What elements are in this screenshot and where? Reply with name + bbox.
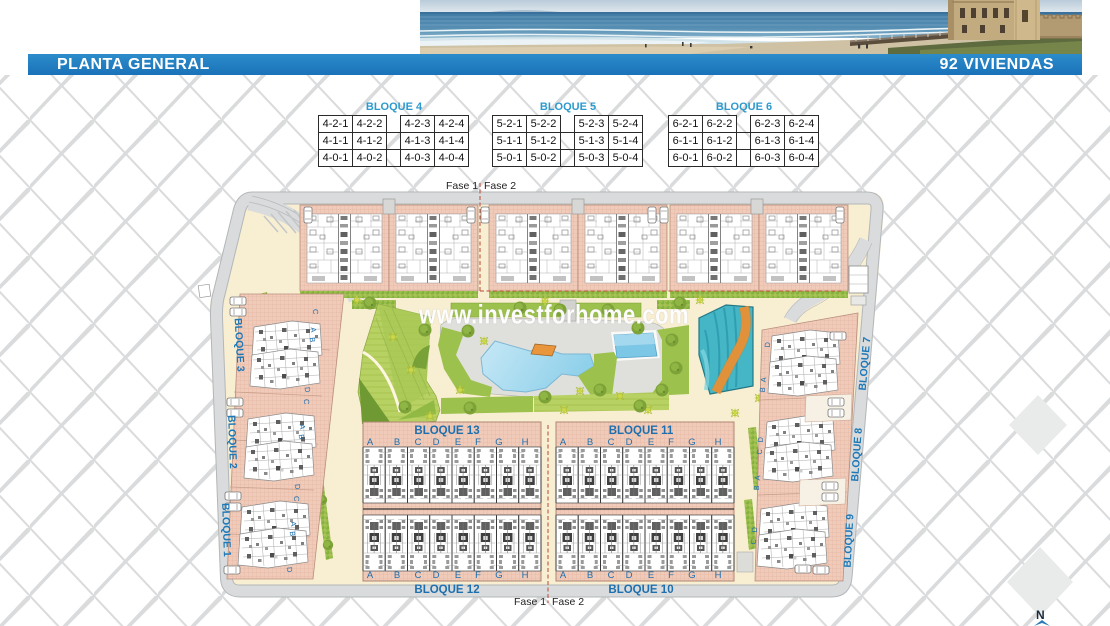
svg-text:BLOQUE 13: BLOQUE 13 (414, 425, 479, 437)
svg-text:BLOQUE 10: BLOQUE 10 (608, 584, 673, 596)
svg-text:D: D (626, 437, 633, 448)
svg-text:A: A (309, 327, 318, 333)
svg-text:A: A (560, 437, 567, 448)
svg-text:F: F (668, 437, 674, 448)
svg-text:G: G (495, 570, 502, 581)
svg-text:C: C (608, 570, 615, 581)
svg-text:D: D (433, 570, 440, 581)
svg-text:B: B (758, 387, 767, 393)
svg-text:C: C (415, 437, 422, 448)
svg-text:B: B (394, 570, 400, 581)
svg-text:G: G (495, 437, 502, 448)
svg-text:B: B (587, 437, 593, 448)
svg-text:D: D (433, 437, 440, 448)
svg-text:H: H (715, 437, 722, 448)
svg-text:E: E (648, 437, 654, 448)
svg-text:G: G (688, 570, 695, 581)
svg-text:B: B (587, 570, 593, 581)
svg-text:BLOQUE 8: BLOQUE 8 (849, 427, 865, 482)
svg-text:C: C (608, 437, 615, 448)
svg-text:C: C (415, 570, 422, 581)
svg-text:BLOQUE 2: BLOQUE 2 (225, 415, 239, 469)
svg-text:A: A (289, 521, 298, 527)
svg-text:B: B (288, 531, 297, 537)
svg-text:H: H (522, 437, 529, 448)
svg-text:B: B (394, 437, 400, 448)
svg-text:B: B (308, 337, 317, 343)
svg-text:BLOQUE 1: BLOQUE 1 (219, 503, 233, 557)
svg-text:A: A (753, 475, 762, 481)
svg-text:E: E (648, 570, 654, 581)
svg-text:G: G (688, 437, 695, 448)
svg-text:F: F (475, 570, 481, 581)
svg-text:B: B (297, 434, 306, 440)
svg-text:E: E (455, 570, 461, 581)
svg-text:BLOQUE 12: BLOQUE 12 (414, 584, 479, 596)
svg-text:A: A (759, 377, 768, 383)
svg-text:E: E (455, 437, 461, 448)
svg-text:B: B (752, 485, 761, 491)
svg-text:BLOQUE 11: BLOQUE 11 (609, 425, 674, 437)
svg-text:H: H (522, 570, 529, 581)
svg-text:F: F (668, 570, 674, 581)
svg-text:A: A (560, 570, 567, 581)
svg-text:A: A (367, 437, 374, 448)
svg-text:BLOQUE 9: BLOQUE 9 (842, 514, 857, 568)
svg-text:A: A (298, 424, 307, 430)
svg-text:A: A (367, 570, 374, 581)
svg-text:F: F (475, 437, 481, 448)
svg-text:D: D (626, 570, 633, 581)
svg-text:H: H (715, 570, 722, 581)
